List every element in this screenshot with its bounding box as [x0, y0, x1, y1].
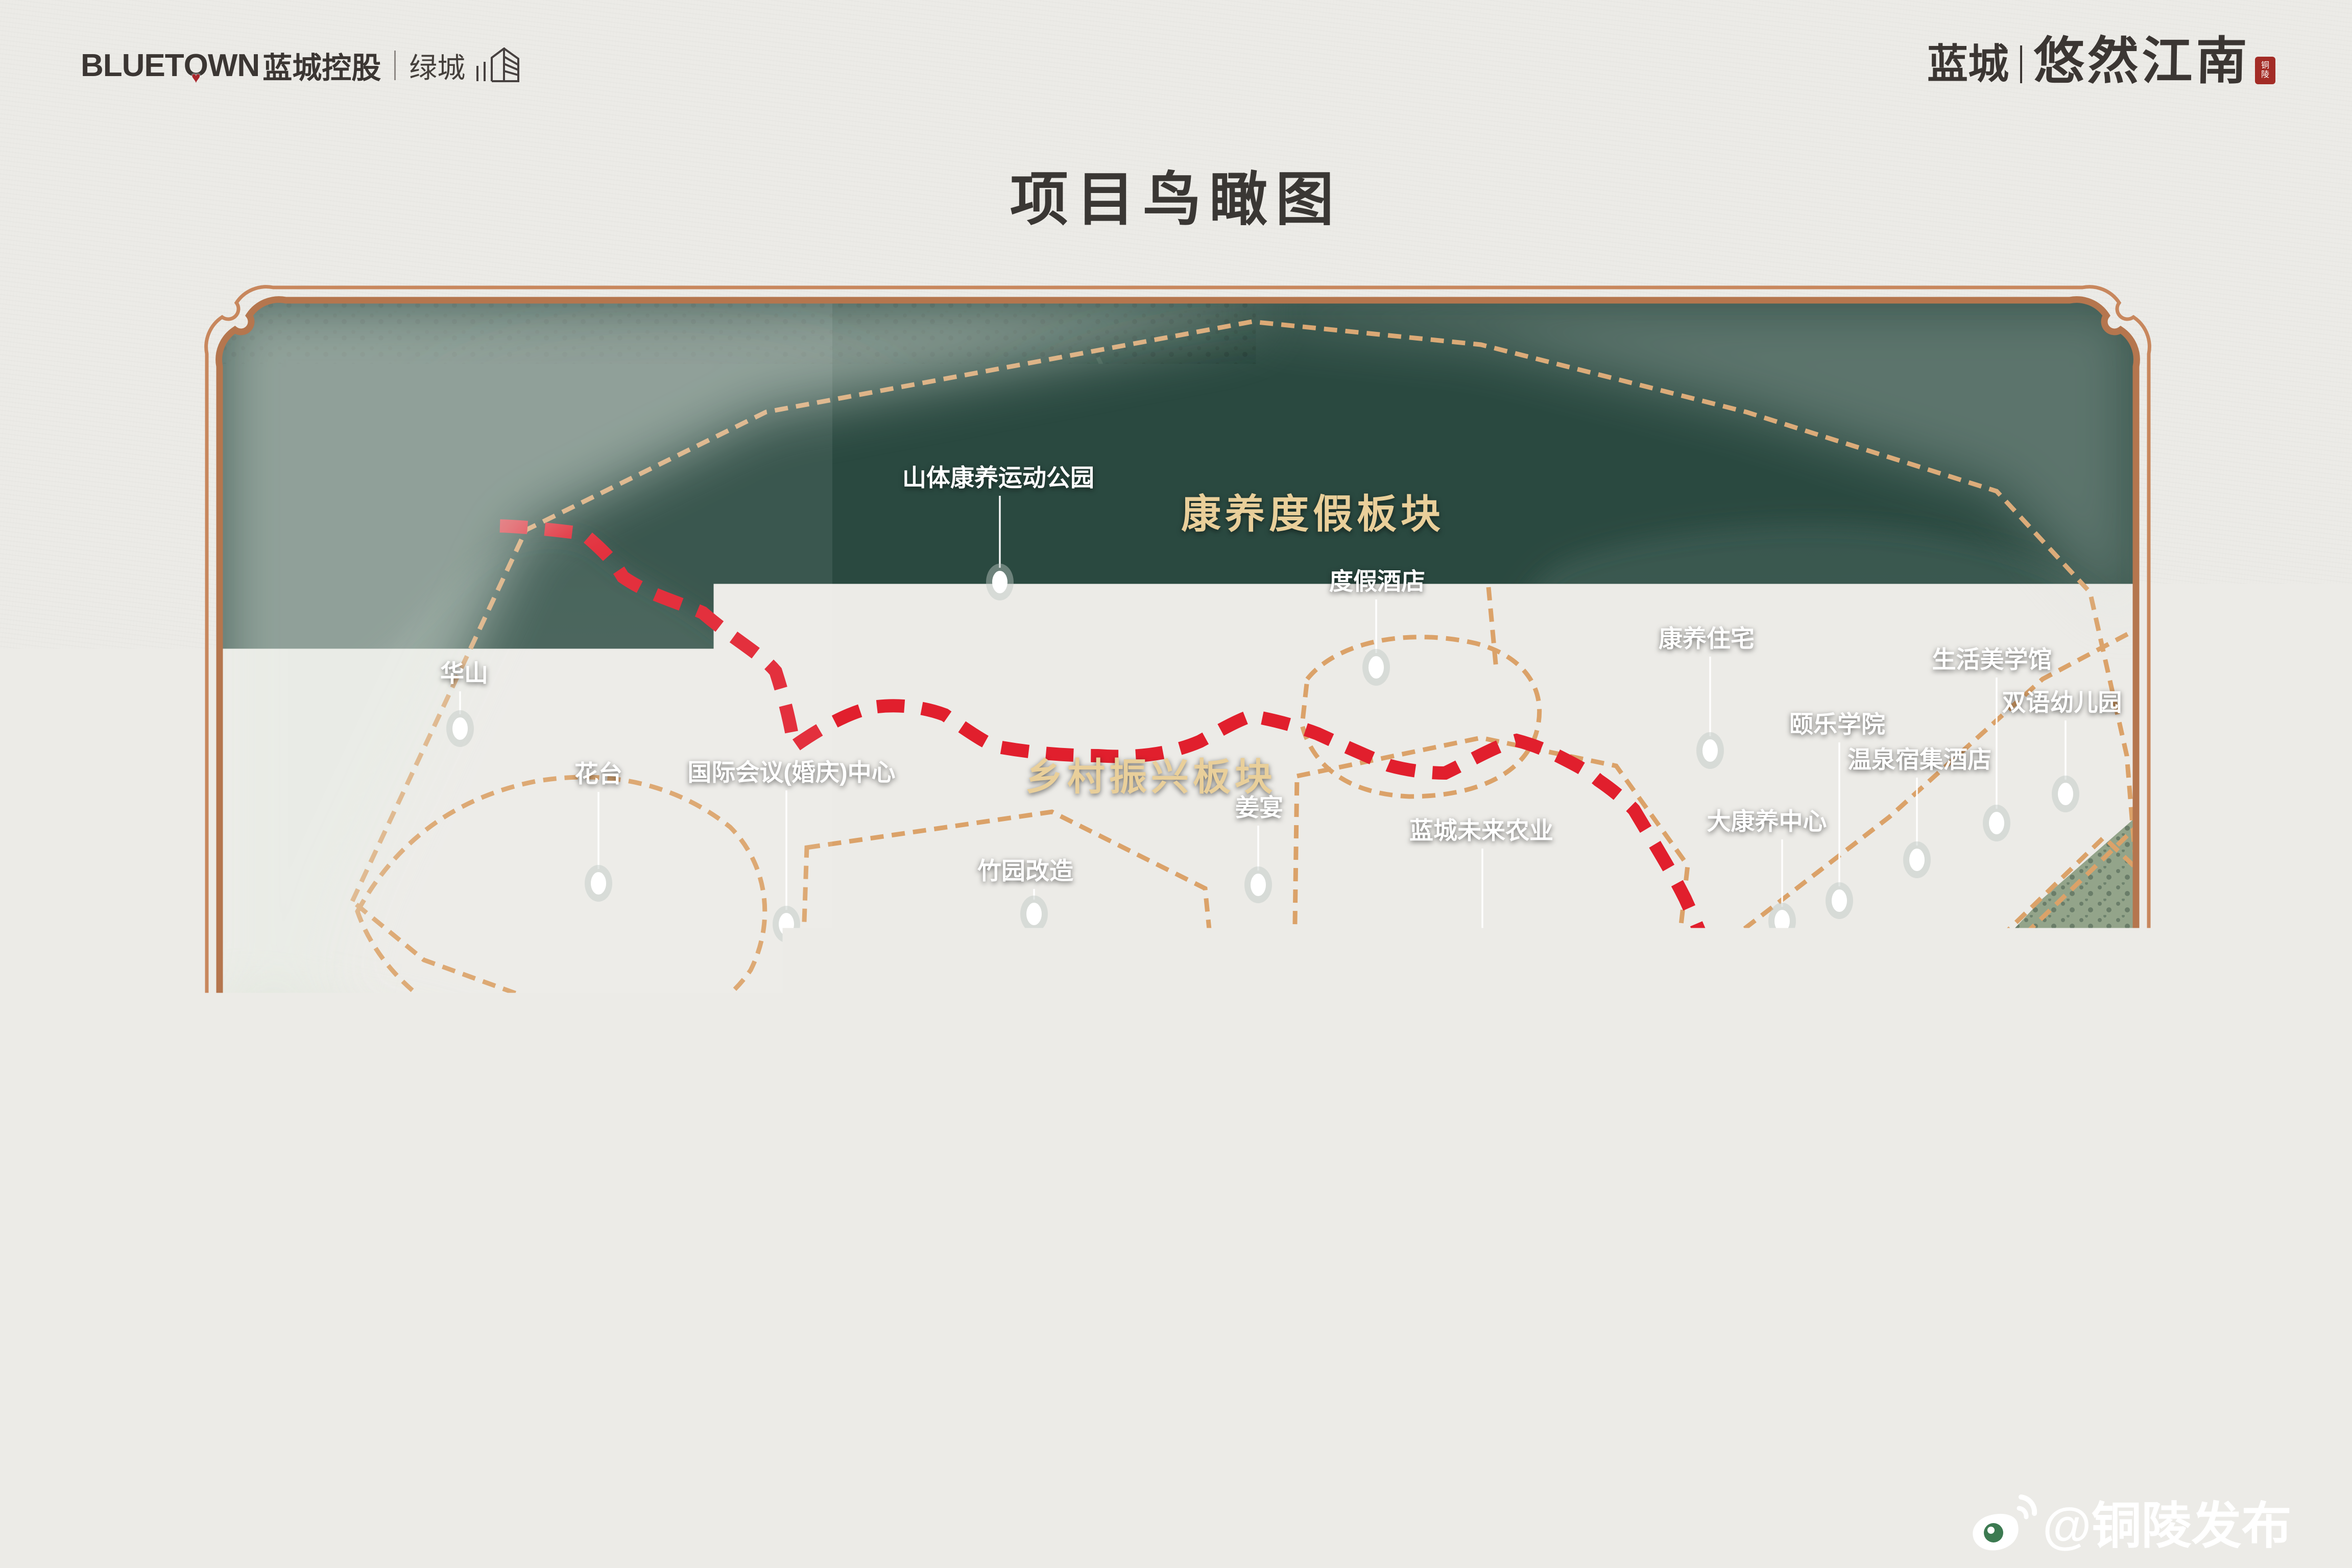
map-dot	[914, 1104, 929, 1126]
map-label: 颐乐学院	[1789, 711, 1885, 738]
map-label: 温泉宿集酒店	[1847, 746, 1991, 773]
map-dot	[1251, 874, 1266, 896]
aerial-render: 鸟瞰图	[220, 300, 2148, 1477]
map-dot	[1519, 1301, 1534, 1323]
map-dot	[779, 913, 794, 935]
map-dot	[452, 717, 468, 740]
map-dot	[1316, 1194, 1332, 1216]
map-label: 生活美学馆	[1932, 646, 2052, 673]
map-label: 度假酒店	[1329, 568, 1425, 595]
map-label: 国际会议(婚庆)中心	[687, 759, 895, 786]
map-dot	[992, 571, 1007, 593]
map-dot	[1909, 849, 1925, 871]
map-label: 竹园改造	[977, 857, 1073, 884]
map-label: 沿新大道20米退让景观改造	[769, 1211, 1059, 1238]
map-dot	[1475, 959, 1490, 981]
map-label: 华山	[440, 660, 488, 687]
map-label: 康养住宅	[1659, 625, 1755, 652]
zone-title: 乡村振兴板块	[1025, 756, 1277, 798]
map-label: 双语幼儿园	[2002, 689, 2122, 716]
poster-page: { "header": { "brand_left": { "bluetown_…	[0, 0, 2352, 1568]
map-label: 姜宴停车场	[1061, 1253, 1181, 1280]
map-dot	[1369, 656, 1384, 679]
map-label: 福利院	[1291, 1325, 1364, 1353]
zone-title: 康养度假板块	[1181, 491, 1445, 536]
birdseye-map: 鸟瞰图 康养度假板块乡村振兴板块山体康养运动公园度假酒店康养住宅生活美学馆双语幼…	[0, 0, 2352, 1568]
map-label: 姜宴	[1235, 794, 1283, 821]
map-dot	[1774, 910, 1790, 932]
watermark-handle: @铜陵发布	[2043, 1498, 2292, 1554]
watercolor-left-band	[0, 1283, 213, 1356]
map-label: 山体康养运动公园	[902, 464, 1094, 491]
map-label: 大康养中心	[1707, 808, 1827, 835]
map-label: 加油站	[1487, 1384, 1559, 1411]
map-dot	[1113, 1135, 1129, 1157]
map-label: 花台	[574, 760, 622, 787]
map-dot	[2058, 783, 2073, 805]
map-dot	[1026, 903, 1042, 925]
map-dot	[1702, 739, 1718, 762]
map-label: 蓝城未来农业	[1409, 817, 1553, 844]
map-dot	[1832, 889, 1847, 912]
map-dot	[591, 872, 606, 895]
map-dot	[1989, 812, 2004, 834]
corner-tag: 鸟瞰图	[2014, 1416, 2073, 1437]
